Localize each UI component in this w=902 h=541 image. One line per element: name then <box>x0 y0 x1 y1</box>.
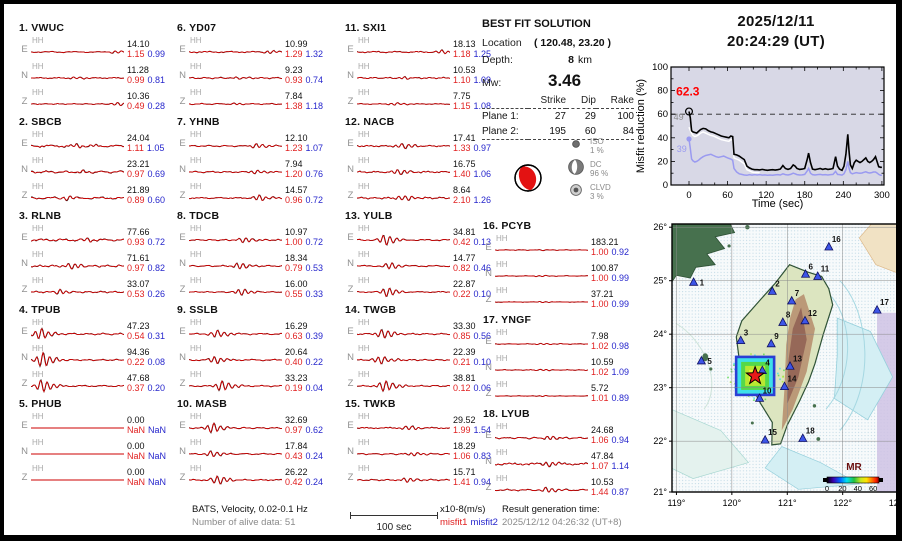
waveform-svg <box>495 263 588 285</box>
event-time: 20:24:29 (UT) <box>652 32 900 52</box>
station-number-label: 7 <box>795 289 800 298</box>
component-label: E <box>18 44 31 55</box>
iso-icon <box>566 135 586 156</box>
station-title: 18. LYUB <box>483 408 642 422</box>
waveform-svg <box>495 237 588 259</box>
trace-values: 0.00NaNNaN <box>127 441 170 461</box>
y-tick-label: 100 <box>652 62 668 73</box>
component-label: E <box>482 336 495 347</box>
misfit2-value: 0.24 <box>306 451 324 461</box>
waveform-svg <box>495 289 588 311</box>
station-title: 9. SSLB <box>177 304 328 318</box>
misfit-values: 1.231.07 <box>285 143 328 153</box>
component-label: Z <box>344 472 357 483</box>
trace-plot: HH <box>357 88 450 114</box>
misfit-values: 1.440.87 <box>591 487 634 497</box>
misfit1-value: 1.44 <box>591 487 609 497</box>
trace-values: 10.591.021.09 <box>591 357 634 377</box>
x-tick-label: 240 <box>835 190 851 201</box>
fault-plane-table: Strike Dip Rake Plane 1: 27 29 100 Plane… <box>482 93 634 140</box>
component-label: N <box>482 456 495 467</box>
misfit-values: 0.220.08 <box>127 357 170 367</box>
trace-plot: HH <box>189 88 282 114</box>
misfit-values: 0.890.60 <box>127 195 170 205</box>
waveform-svg <box>495 383 588 405</box>
station-title: 17. YNGF <box>483 314 642 328</box>
trace-plot: HH <box>357 36 450 62</box>
component-label: E <box>482 430 495 441</box>
misfit2-value: 0.82 <box>148 263 166 273</box>
waveform-svg <box>357 373 450 395</box>
trace-row: EHH183.211.000.92 <box>482 234 642 260</box>
component-label: N <box>344 446 357 457</box>
component-label: Z <box>176 378 189 389</box>
misfit1-value: 0.55 <box>285 289 303 299</box>
waveform-svg <box>357 91 450 113</box>
station-block: 15. TWKBEHH29.521.991.54NHH18.291.060.83… <box>344 398 496 492</box>
trace-values: 47.841.071.14 <box>591 451 634 471</box>
trace-values: 32.690.970.62 <box>285 415 328 435</box>
misfit1-value: 1.41 <box>453 477 471 487</box>
station-number-label: 5 <box>707 357 712 366</box>
misfit-values: 0.930.74 <box>285 75 328 85</box>
map-y-label: 21° <box>653 487 667 497</box>
trace-values: 21.890.890.60 <box>127 185 170 205</box>
waveform-svg <box>189 91 282 113</box>
component-label: E <box>18 326 31 337</box>
component-label: N <box>344 352 357 363</box>
amplitude-value: 0.00 <box>127 415 170 425</box>
trace-row: EHH10.991.291.32 <box>176 36 328 62</box>
misfit1-value: 0.22 <box>453 289 471 299</box>
iso-pct: 1 % <box>590 146 604 155</box>
alive-data-line: Number of alive data: 51 <box>192 516 308 529</box>
misfit1-value: 0.43 <box>285 451 303 461</box>
trace-row: NHH18.340.790.53 <box>176 250 328 276</box>
col-rake: Rake <box>596 93 634 109</box>
station-block: 10. MASBEHH32.690.970.62NHH17.840.430.24… <box>176 398 328 492</box>
station-title: 14. TWGB <box>345 304 496 318</box>
trace-row: EHH14.101.150.99 <box>18 36 170 62</box>
misfit2-value: 0.62 <box>306 425 324 435</box>
component-label: Z <box>176 190 189 201</box>
trace-values: 24.041.111.05 <box>127 133 170 153</box>
component-label: N <box>18 258 31 269</box>
misfit2-value: 0.28 <box>148 101 166 111</box>
trace-plot: HH <box>357 318 450 344</box>
trace-plot: HH <box>495 422 588 448</box>
trace-plot: HH <box>189 370 282 396</box>
component-label: N <box>18 446 31 457</box>
colorbar-title: MR <box>846 462 862 473</box>
station-block: 11. SXI1EHH18.131.181.25NHH10.531.101.09… <box>344 22 496 116</box>
trace-row: EHH18.131.181.25 <box>344 36 496 62</box>
misfit1-value: 0.82 <box>453 263 471 273</box>
component-label: E <box>18 232 31 243</box>
misfit1-value: 1.00 <box>591 247 609 257</box>
amplitude-value: 47.23 <box>127 321 170 331</box>
amplitude-value: 10.59 <box>591 357 634 367</box>
station-title: 4. TPUB <box>19 304 170 318</box>
trace-row: EHH24.681.060.94 <box>482 422 642 448</box>
trace-row: ZHH47.680.370.20 <box>18 370 170 396</box>
dc-pct: 96 % <box>590 169 608 178</box>
misfit1-value: 0.54 <box>127 331 145 341</box>
waveform-svg <box>31 373 124 395</box>
misfit1-value: 0.42 <box>285 477 303 487</box>
trace-plot: HH <box>189 224 282 250</box>
amplitude-value: 24.04 <box>127 133 170 143</box>
map-y-label: 23° <box>653 383 667 393</box>
trace-row: NHH16.751.401.06 <box>344 156 496 182</box>
misfit1-value: 1.00 <box>285 237 303 247</box>
station-number-label: 15 <box>768 428 777 437</box>
clvd-pct: 3 % <box>590 192 604 201</box>
amplitude-value: 18.34 <box>285 253 328 263</box>
map-x-label: 123° <box>889 498 902 508</box>
misfit-values: 1.200.76 <box>285 169 328 179</box>
bats-moment-tensor-report: 1. VWUCEHH14.101.150.99NHH11.280.990.81Z… <box>0 0 902 541</box>
station-title: 6. YD07 <box>177 22 328 36</box>
station-number-label: 10 <box>763 386 772 395</box>
decomp-clvd: CLVD 3 % <box>566 180 611 203</box>
misfit-values: 0.190.04 <box>285 383 328 393</box>
footer-result-time: Result generation time: 2025/12/12 04:26… <box>502 503 622 529</box>
trace-plot: HH <box>357 464 450 490</box>
map-x-label: 122° <box>833 498 852 508</box>
component-label: Z <box>176 472 189 483</box>
misfit-values: 1.111.05 <box>127 143 170 153</box>
misfit1-value: NaN <box>127 477 145 487</box>
station-block: 18. LYUBEHH24.681.060.94NHH47.841.071.14… <box>482 408 642 502</box>
depth-unit: km <box>578 54 592 66</box>
trace-row: ZHH8.642.101.26 <box>344 182 496 208</box>
waveform-svg <box>189 279 282 301</box>
misfit2-value: 0.26 <box>148 289 166 299</box>
blue-start-marker <box>686 136 691 141</box>
misfit2-value: 1.09 <box>612 367 630 377</box>
misfit-values: 1.000.99 <box>591 273 634 283</box>
misfit1-value: 1.15 <box>127 49 145 59</box>
misfit2-value: 1.18 <box>306 101 324 111</box>
component-label: Z <box>18 284 31 295</box>
misfit-values: 1.381.18 <box>285 101 328 111</box>
waveform-svg <box>495 477 588 499</box>
amplitude-value: 12.10 <box>285 133 328 143</box>
component-label: Z <box>18 472 31 483</box>
trace-row: ZHH22.870.220.10 <box>344 276 496 302</box>
waveform-svg <box>189 133 282 155</box>
trace-plot: HH <box>189 36 282 62</box>
station-title: 5. PHUB <box>19 398 170 412</box>
component-label: E <box>344 44 357 55</box>
trace-plot: HH <box>357 438 450 464</box>
trace-row: ZHH21.890.890.60 <box>18 182 170 208</box>
misfit-values: 0.490.28 <box>127 101 170 111</box>
mw-value: 3.46 <box>548 71 581 91</box>
misfit-values: 0.930.72 <box>127 237 170 247</box>
misfit1-value: 0.99 <box>127 75 145 85</box>
misfit-values: 0.990.81 <box>127 75 170 85</box>
misfit2-value: 0.92 <box>612 247 630 257</box>
station-number-label: 14 <box>788 375 797 384</box>
waveform-svg <box>31 467 124 489</box>
trace-values: 71.610.970.82 <box>127 253 170 273</box>
misfit2-value: 1.14 <box>612 461 630 471</box>
waveform-svg <box>495 451 588 473</box>
trace-plot: HH <box>495 328 588 354</box>
misfit-values: 0.970.62 <box>285 425 328 435</box>
misfit1-value: 1.15 <box>453 101 471 111</box>
waveform-svg <box>31 65 124 87</box>
trace-values: 47.230.540.31 <box>127 321 170 341</box>
trace-values: 18.340.790.53 <box>285 253 328 273</box>
component-label: N <box>482 362 495 373</box>
misfit1-value: 1.99 <box>453 425 471 435</box>
decomposition-list: ISO 1 % DC 96 % CLVD 3 % <box>566 134 611 203</box>
waveform-svg <box>189 441 282 463</box>
trace-values: 23.210.970.69 <box>127 159 170 179</box>
amplitude-value: 0.00 <box>127 441 170 451</box>
misfit-values: 0.960.72 <box>285 195 328 205</box>
amplitude-value: 16.00 <box>285 279 328 289</box>
event-datetime: 2025/12/11 20:24:29 (UT) <box>652 12 900 52</box>
component-label: Z <box>344 190 357 201</box>
map-y-label: 25° <box>653 276 667 286</box>
waveform-svg <box>189 253 282 275</box>
trace-values: 10.531.440.87 <box>591 477 634 497</box>
waveform-column-2: 6. YD07EHH10.991.291.32NHH9.230.930.74ZH… <box>176 14 328 492</box>
component-label: N <box>176 258 189 269</box>
iso-name: ISO <box>590 137 604 146</box>
plane1-rake: 100 <box>596 109 634 125</box>
trace-plot: HH <box>357 156 450 182</box>
station-block: 13. YULBEHH34.810.420.13NHH14.770.820.46… <box>344 210 496 304</box>
trace-row: EHH10.971.000.72 <box>176 224 328 250</box>
trace-values: 24.681.060.94 <box>591 425 634 445</box>
trace-plot: HH <box>357 62 450 88</box>
trace-values: 16.000.550.33 <box>285 279 328 299</box>
misfit1-value: 0.53 <box>127 289 145 299</box>
station-block: 14. TWGBEHH33.300.850.56NHH22.390.210.10… <box>344 304 496 398</box>
misfit-values: 0.540.31 <box>127 331 170 341</box>
waveform-svg <box>357 253 450 275</box>
trace-plot: HH <box>495 380 588 406</box>
map-x-label: 119° <box>667 498 685 508</box>
station-number-label: 16 <box>832 235 841 244</box>
misfit1-value: 1.20 <box>285 169 303 179</box>
trace-row: EHH32.690.970.62 <box>176 412 328 438</box>
misfit2-value: 0.87 <box>612 487 630 497</box>
waveform-svg <box>31 227 124 249</box>
misfit2-value: 0.72 <box>306 237 324 247</box>
waveform-svg <box>189 227 282 249</box>
trace-row: ZHH15.711.410.94 <box>344 464 496 490</box>
misfit1-value: 0.79 <box>285 263 303 273</box>
component-label: E <box>176 232 189 243</box>
waveform-svg <box>189 65 282 87</box>
amplitude-value: 21.89 <box>127 185 170 195</box>
trace-plot: HH <box>31 224 124 250</box>
trace-values: 7.941.200.76 <box>285 159 328 179</box>
component-label: E <box>176 138 189 149</box>
waveform-svg <box>495 425 588 447</box>
trace-row: EHH47.230.540.31 <box>18 318 170 344</box>
waveform-svg <box>189 467 282 489</box>
misfit1-value: 1.02 <box>591 367 609 377</box>
footer-units: x10-8(m/s) misfit1misfit2 <box>440 503 498 529</box>
station-block: 16. PCYBEHH183.211.000.92NHH100.871.000.… <box>482 220 642 314</box>
station-number-label: 12 <box>808 309 817 318</box>
misfit1-value: 0.97 <box>285 425 303 435</box>
station-number-label: 13 <box>793 354 802 363</box>
trace-plot: HH <box>31 88 124 114</box>
component-label: E <box>344 420 357 431</box>
station-title: 16. PCYB <box>483 220 642 234</box>
waveform-svg <box>189 39 282 61</box>
station-block: 8. TDCBEHH10.971.000.72NHH18.340.790.53Z… <box>176 210 328 304</box>
station-number-label: 11 <box>821 264 830 273</box>
waveform-svg <box>357 133 450 155</box>
trace-plot: HH <box>31 318 124 344</box>
component-label: E <box>18 420 31 431</box>
component-label: Z <box>176 284 189 295</box>
trace-plot: HH <box>31 182 124 208</box>
waveform-svg <box>357 65 450 87</box>
waveform-svg <box>357 321 450 343</box>
trace-row: EHH0.00NaNNaN <box>18 412 170 438</box>
amplitude-value: 94.36 <box>127 347 170 357</box>
misfit-values: 1.000.72 <box>285 237 328 247</box>
trace-plot: HH <box>495 286 588 312</box>
component-label: N <box>482 268 495 279</box>
amplitude-value: 14.10 <box>127 39 170 49</box>
waveform-svg <box>31 185 124 207</box>
trace-plot: HH <box>495 448 588 474</box>
misfit1-value: 1.00 <box>591 299 609 309</box>
waveform-svg <box>189 373 282 395</box>
misfit1-value: 0.42 <box>453 237 471 247</box>
trace-values: 33.230.190.04 <box>285 373 328 393</box>
trace-values: 11.280.990.81 <box>127 65 170 85</box>
trace-plot: HH <box>189 412 282 438</box>
trace-plot: HH <box>31 130 124 156</box>
waveform-svg <box>495 357 588 379</box>
amplitude-value: 10.53 <box>591 477 634 487</box>
trace-plot: HH <box>357 370 450 396</box>
misfit2-value: 0.89 <box>612 393 630 403</box>
trace-row: NHH7.941.200.76 <box>176 156 328 182</box>
trace-row: ZHH38.810.120.06 <box>344 370 496 396</box>
clvd-icon <box>566 181 586 202</box>
misfit1-value: 0.37 <box>127 383 145 393</box>
y-tick-label: 80 <box>657 86 668 97</box>
misfit-values: 0.370.20 <box>127 383 170 393</box>
misfit2-value: 0.04 <box>306 383 324 393</box>
station-title: 15. TWKB <box>345 398 496 412</box>
trace-plot: HH <box>189 318 282 344</box>
trace-row: ZHH10.531.440.87 <box>482 474 642 500</box>
waveform-svg <box>31 441 124 463</box>
trace-plot: HH <box>495 354 588 380</box>
misfit1-value: 0.89 <box>127 195 145 205</box>
station-title: 13. YULB <box>345 210 496 224</box>
misfit1-value: 1.29 <box>285 49 303 59</box>
waveform-svg <box>31 279 124 301</box>
amplitude-value: 71.61 <box>127 253 170 263</box>
misfit-values: NaNNaN <box>127 477 170 487</box>
trace-plot: HH <box>31 250 124 276</box>
waveform-svg <box>357 467 450 489</box>
trace-row: NHH47.841.071.14 <box>482 448 642 474</box>
dc-name: DC <box>590 160 602 169</box>
trace-values: 77.660.930.72 <box>127 227 170 247</box>
trace-row: NHH10.591.021.09 <box>482 354 642 380</box>
trace-row: NHH9.230.930.74 <box>176 62 328 88</box>
waveform-svg <box>357 279 450 301</box>
map-x-label: 121° <box>778 498 797 508</box>
trace-row: ZHH0.00NaNNaN <box>18 464 170 490</box>
component-label: N <box>344 258 357 269</box>
waveform-column-3: 11. SXI1EHH18.131.181.25NHH10.531.101.09… <box>344 14 496 492</box>
amplitude-value: 7.84 <box>285 91 328 101</box>
depth-label: Depth: <box>482 54 534 66</box>
trace-values: 10.360.490.28 <box>127 91 170 111</box>
amplitude-value: 47.68 <box>127 373 170 383</box>
waveform-svg <box>31 253 124 275</box>
decomp-iso: ISO 1 % <box>566 134 611 157</box>
component-label: N <box>18 70 31 81</box>
misfit-values: 0.530.26 <box>127 289 170 299</box>
bats-line: BATS, Velocity, 0.02-0.1 Hz <box>192 503 308 516</box>
map-y-label: 22° <box>653 436 667 446</box>
component-label: E <box>344 232 357 243</box>
trace-values: 20.640.400.22 <box>285 347 328 367</box>
waveform-svg <box>31 133 124 155</box>
mechanism-area: ISO 1 % DC 96 % CLVD 3 % <box>482 144 648 214</box>
waveform-svg <box>31 415 124 437</box>
amplitude-value: 26.22 <box>285 467 328 477</box>
trace-plot: HH <box>189 276 282 302</box>
misfit1-value: 1.33 <box>453 143 471 153</box>
station-number-label: 4 <box>765 359 770 368</box>
misfit2-value: 0.31 <box>148 331 166 341</box>
misfit1-value: 1.06 <box>591 435 609 445</box>
amplitude-value: 10.99 <box>285 39 328 49</box>
misfit1-value: 1.02 <box>591 341 609 351</box>
misfit-values: 0.790.53 <box>285 263 328 273</box>
misfit1-value: 0.93 <box>127 237 145 247</box>
amplitude-value: 23.21 <box>127 159 170 169</box>
best-fit-solution-panel: BEST FIT SOLUTION Location ( 120.48, 23.… <box>482 18 648 214</box>
trace-values: 5.721.010.89 <box>591 383 634 403</box>
misfit2-value: NaN <box>148 451 166 461</box>
component-label: N <box>344 164 357 175</box>
waveform-svg <box>189 185 282 207</box>
trace-values: 14.101.150.99 <box>127 39 170 59</box>
component-label: Z <box>482 294 495 305</box>
component-label: Z <box>344 378 357 389</box>
misfit2-value: NaN <box>148 477 166 487</box>
misfit1-value: 2.10 <box>453 195 471 205</box>
trace-plot: HH <box>189 464 282 490</box>
station-block: 3. RLNBEHH77.660.930.72NHH71.610.970.82Z… <box>18 210 170 304</box>
misfit-values: 1.021.09 <box>591 367 634 377</box>
misfit-values: 1.020.98 <box>591 341 634 351</box>
trace-plot: HH <box>31 156 124 182</box>
misfit1-legend: misfit1 <box>440 517 467 528</box>
trace-row: EHH12.101.231.07 <box>176 130 328 156</box>
